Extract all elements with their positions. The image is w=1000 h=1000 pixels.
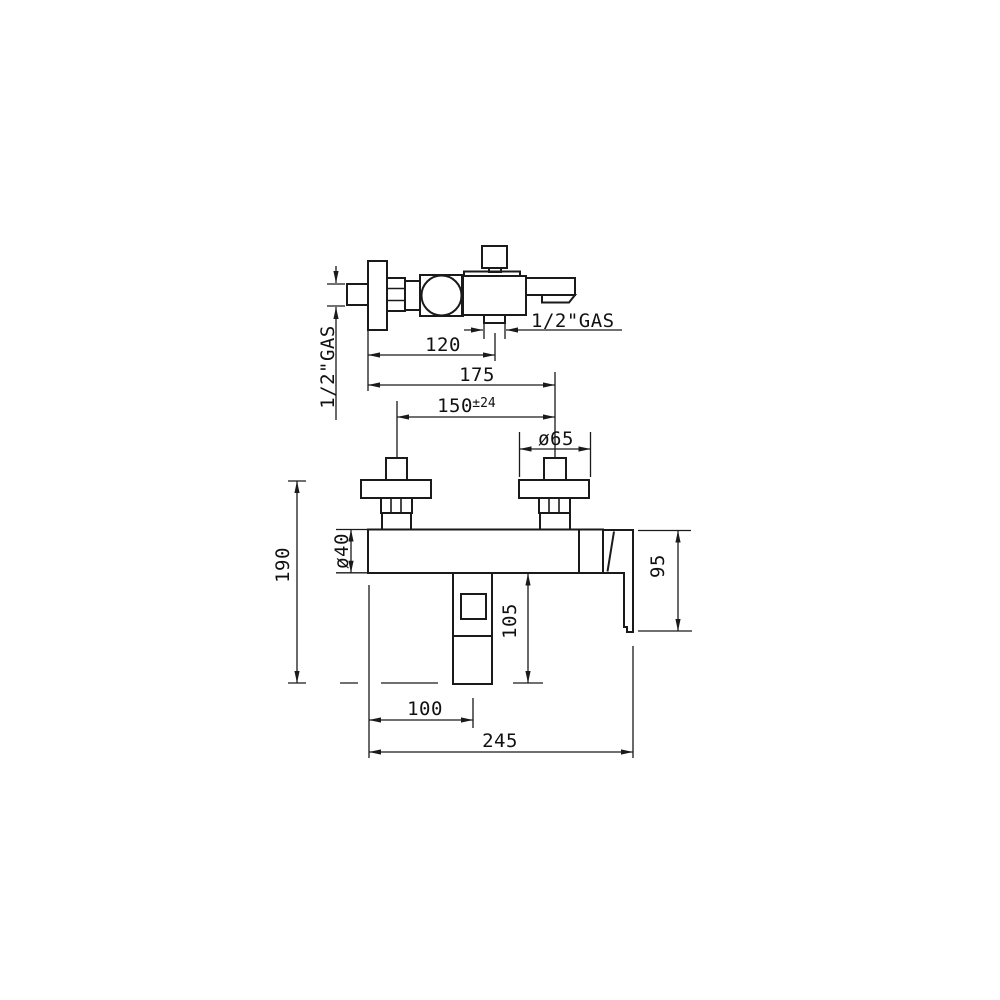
right-inlet-cylinder: [540, 513, 570, 530]
left-inlet-cylinder: [382, 513, 411, 530]
dim-label-150: 150: [437, 395, 473, 417]
dim-label-245: 245: [482, 730, 518, 752]
outlet-thread-label: 1/2"GAS: [531, 310, 615, 332]
front-view: [361, 458, 633, 684]
dim-label-105: 105: [499, 603, 521, 639]
left-inlet-knob: [386, 458, 407, 480]
valve-circle: [422, 276, 462, 316]
mixer-body-front: [368, 530, 603, 574]
dim-label-175: 175: [459, 364, 495, 386]
spout: [526, 278, 575, 295]
lower-outlet-window: [461, 594, 486, 619]
dim-label-95: 95: [647, 554, 669, 578]
left-inlet-nut: [381, 498, 412, 513]
dim-label-40: ø40: [331, 533, 353, 569]
eccentric-connector: [405, 281, 420, 310]
diverter-knob: [482, 246, 507, 268]
lower-outlet-body: [453, 573, 492, 684]
drawing-canvas: 1/2"GAS 1/2"GAS 120 175 150 ±24 ø65: [0, 0, 1000, 1000]
left-inlet-flange: [361, 480, 431, 498]
dim-label-150-tolerance: ±24: [472, 396, 496, 411]
hex-nut: [387, 278, 405, 311]
dim-label-100: 100: [407, 698, 443, 720]
mixer-body-side: [462, 276, 526, 315]
wall-rosette: [368, 261, 387, 330]
spout-lip: [542, 295, 575, 303]
right-inlet-knob: [544, 458, 566, 480]
wall-thread-label: 1/2"GAS: [317, 325, 339, 409]
dim-label-190: 190: [272, 547, 294, 583]
side-view-dimensions: 1/2"GAS 1/2"GAS 120 175 150 ±24 ø65: [317, 266, 622, 477]
handle-edge-line: [608, 532, 615, 572]
technical-drawing-page: 1/2"GAS 1/2"GAS 120 175 150 ±24 ø65: [0, 0, 1000, 1000]
right-inlet-nut: [539, 498, 570, 513]
right-inlet-flange: [519, 480, 589, 498]
wall-nipple: [347, 284, 368, 305]
dim-label-120: 120: [425, 334, 461, 356]
bottom-outlet: [484, 315, 505, 323]
lever-handle: [603, 530, 633, 632]
dim-label-65: ø65: [538, 428, 574, 450]
